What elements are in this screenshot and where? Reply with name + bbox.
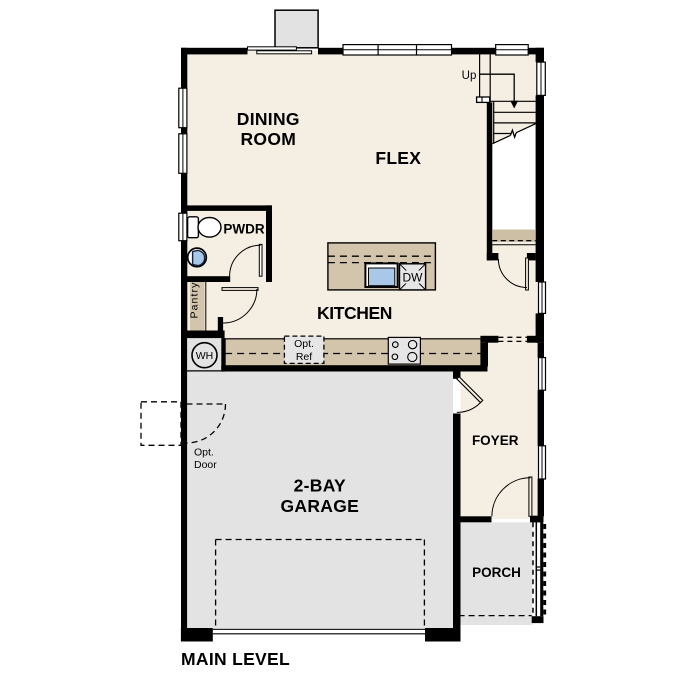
- svg-text:WH: WH: [196, 350, 214, 362]
- svg-text:FOYER: FOYER: [472, 433, 519, 448]
- svg-text:Opt.: Opt.: [194, 447, 214, 459]
- svg-text:Ref: Ref: [296, 351, 312, 363]
- svg-text:GARAGE: GARAGE: [280, 496, 359, 516]
- svg-text:ROOM: ROOM: [240, 129, 296, 149]
- svg-text:Pantry: Pantry: [189, 282, 201, 319]
- svg-text:Opt.: Opt.: [294, 338, 314, 350]
- svg-text:2-BAY: 2-BAY: [294, 476, 346, 496]
- svg-text:DW: DW: [403, 270, 424, 284]
- svg-text:Door: Door: [194, 459, 217, 471]
- svg-text:MAIN LEVEL: MAIN LEVEL: [181, 649, 290, 669]
- svg-text:PWDR: PWDR: [223, 222, 264, 237]
- svg-text:FLEX: FLEX: [375, 148, 421, 168]
- svg-text:DINING: DINING: [237, 109, 300, 129]
- svg-text:KITCHEN: KITCHEN: [317, 303, 392, 323]
- svg-text:Up: Up: [462, 70, 477, 82]
- svg-text:PORCH: PORCH: [472, 565, 521, 580]
